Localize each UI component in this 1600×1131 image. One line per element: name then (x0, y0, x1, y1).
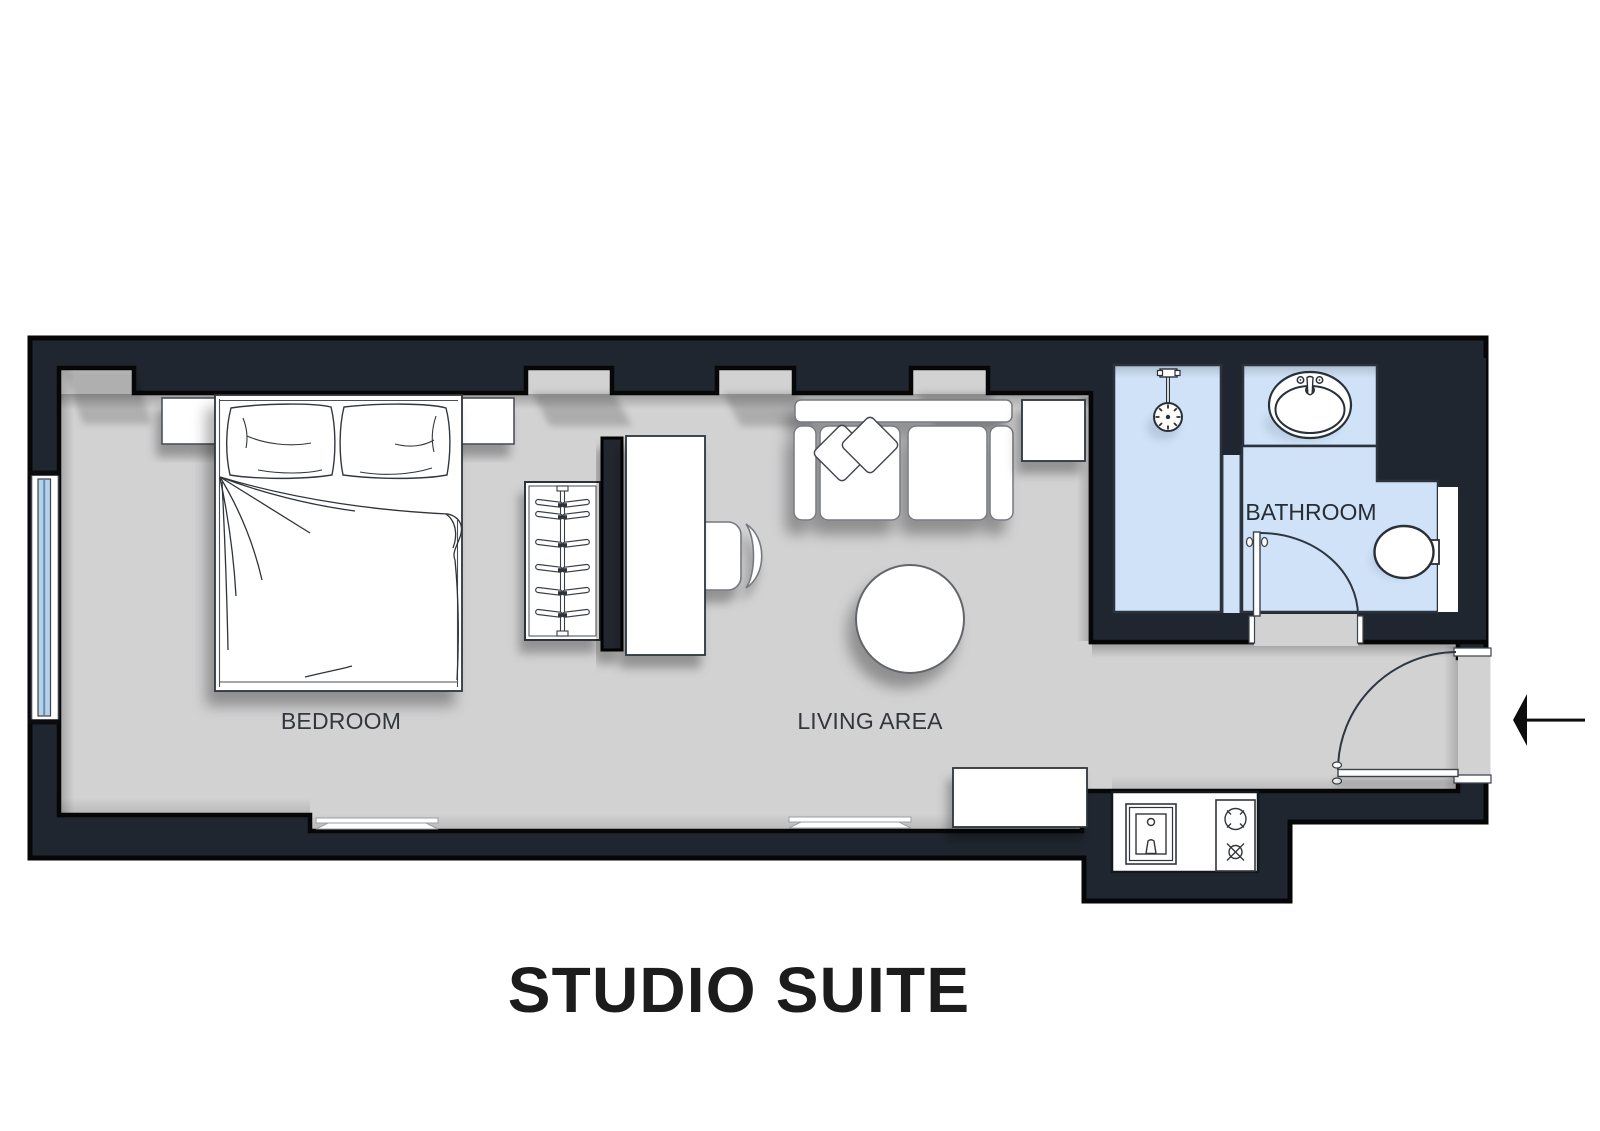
svg-text:LIVING AREA: LIVING AREA (797, 708, 943, 734)
svg-text:BEDROOM: BEDROOM (281, 708, 401, 734)
svg-text:BATHROOM: BATHROOM (1245, 499, 1376, 525)
svg-text:STUDIO SUITE: STUDIO SUITE (508, 954, 970, 1026)
